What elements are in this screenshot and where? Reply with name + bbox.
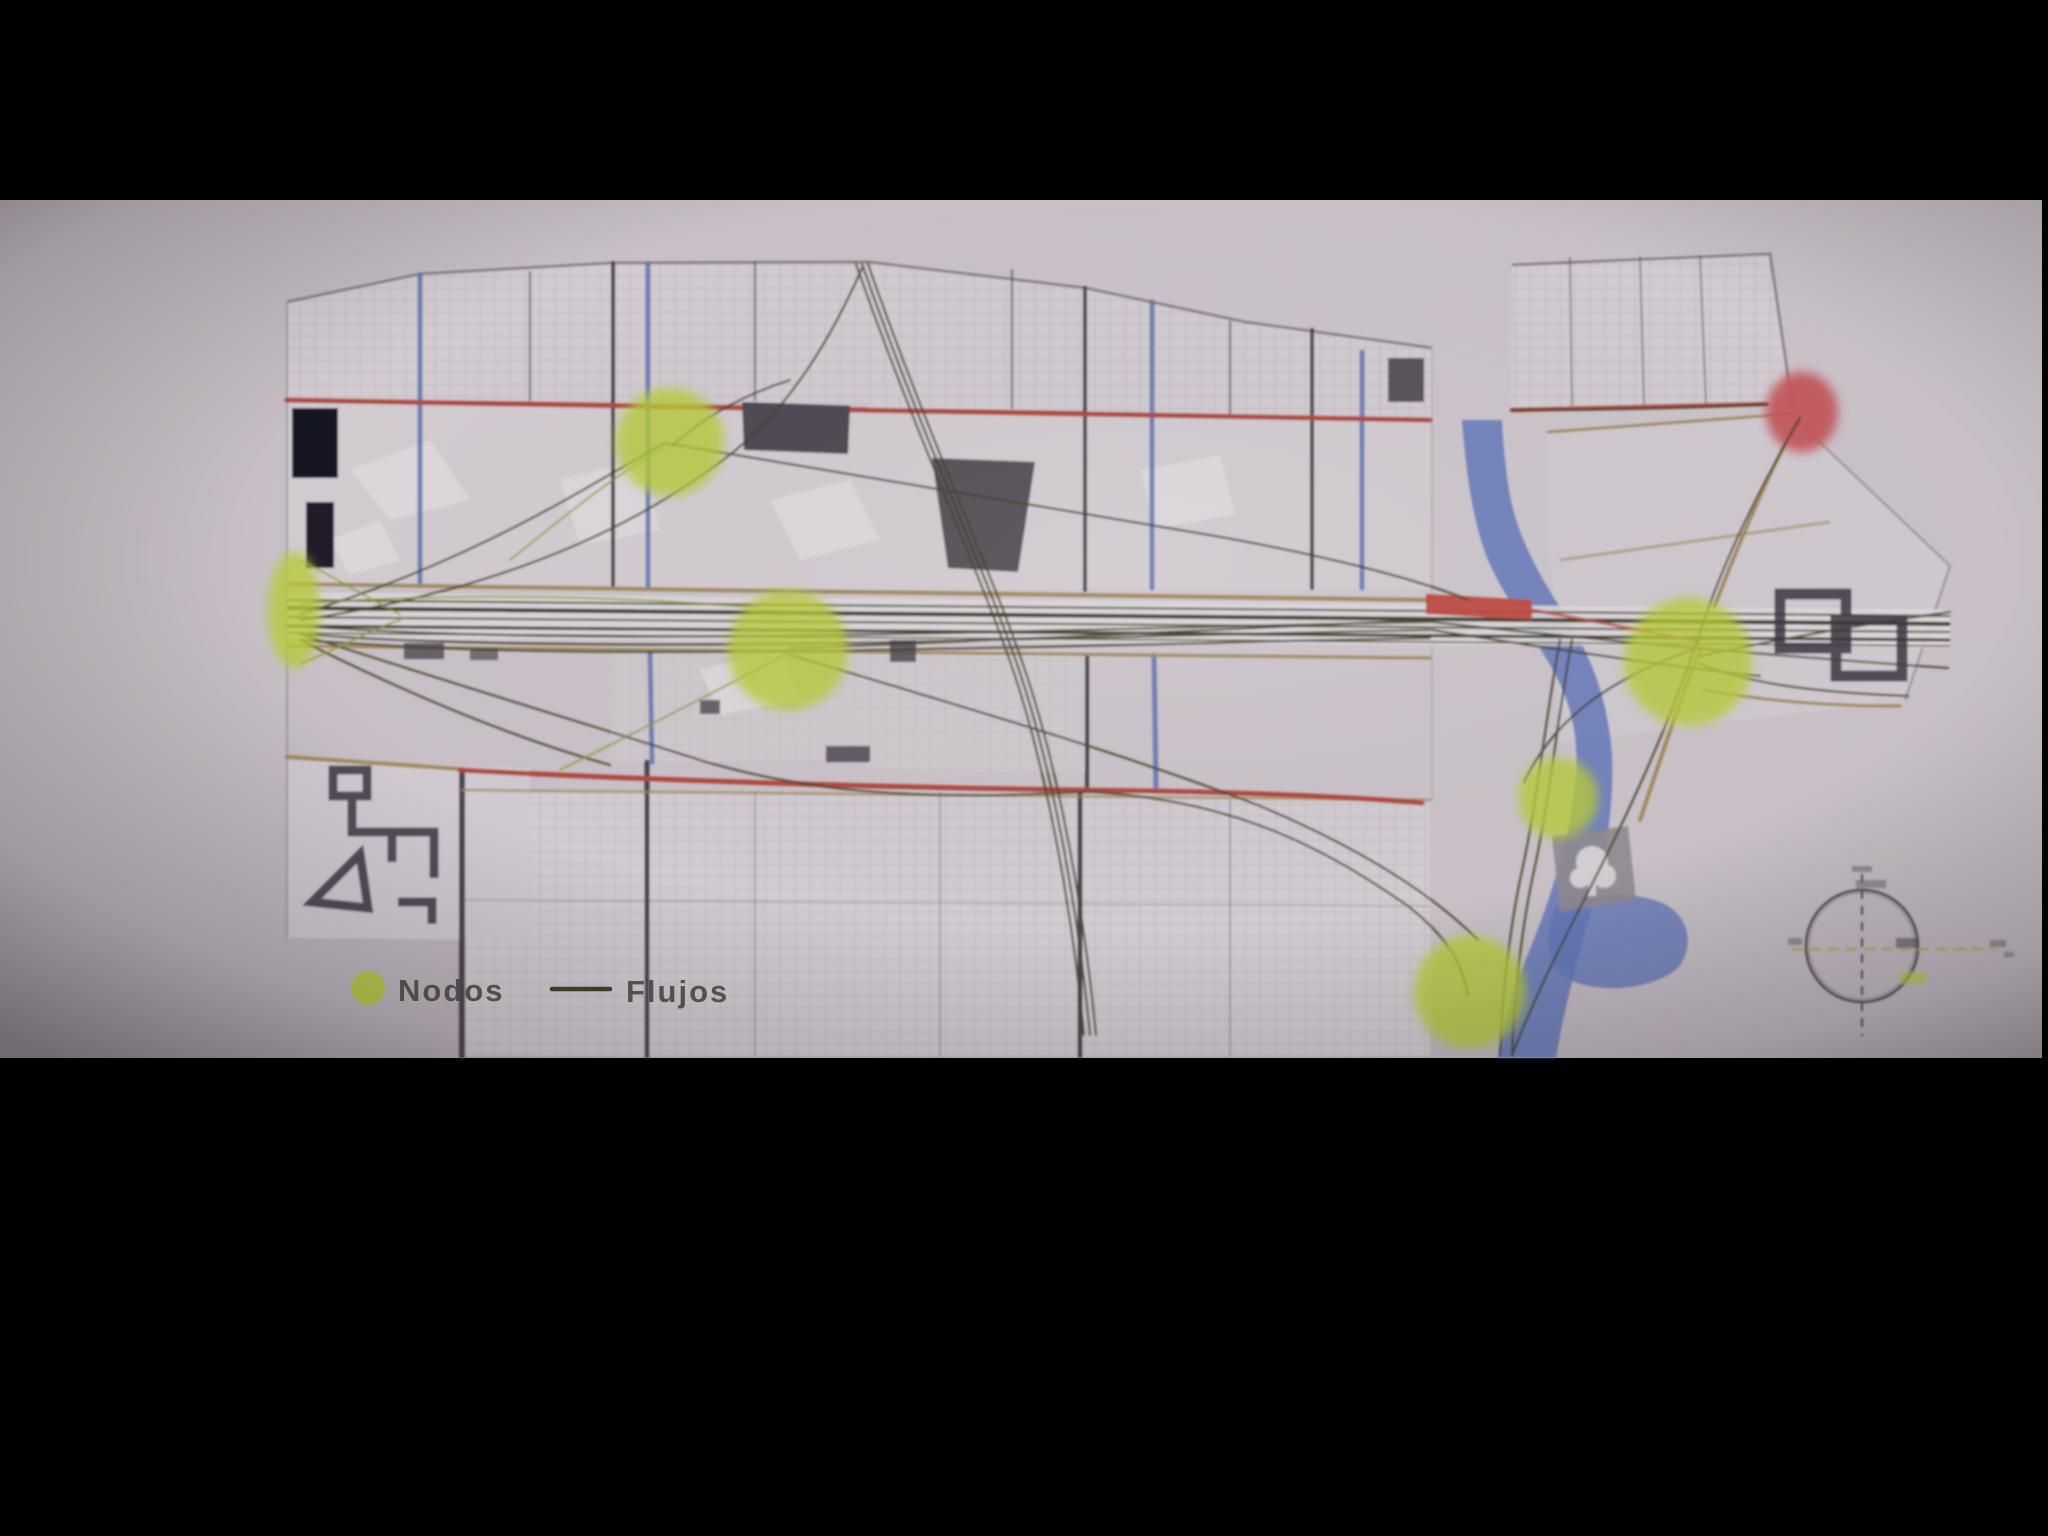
photo-vignette <box>0 200 2042 1058</box>
slide-photo: Nodos Flujos <box>0 0 2048 1536</box>
